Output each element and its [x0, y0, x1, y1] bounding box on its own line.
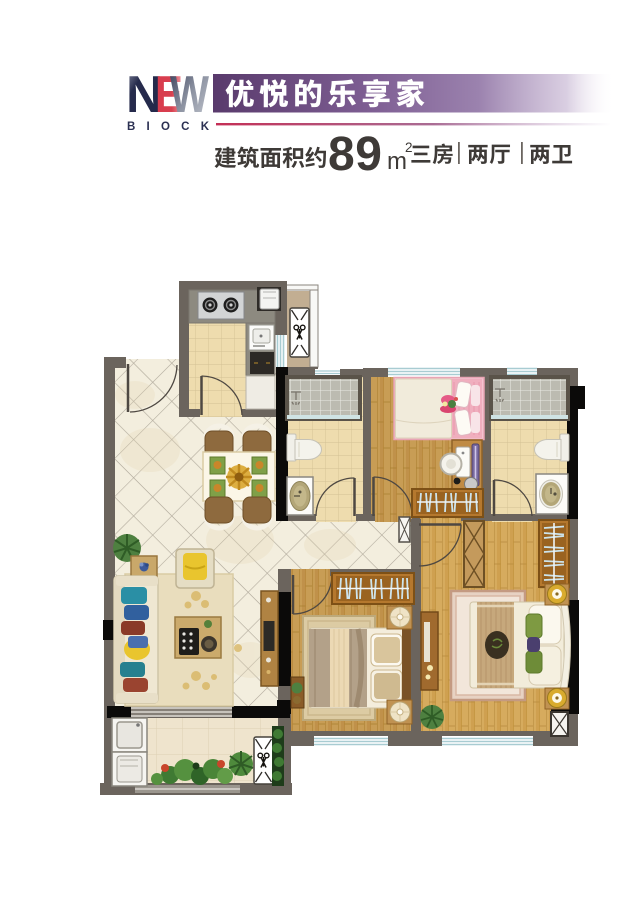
svg-text:89: 89: [328, 128, 382, 181]
svg-text:2: 2: [405, 140, 413, 155]
svg-text:W: W: [170, 66, 210, 124]
svg-text:m: m: [387, 148, 407, 175]
